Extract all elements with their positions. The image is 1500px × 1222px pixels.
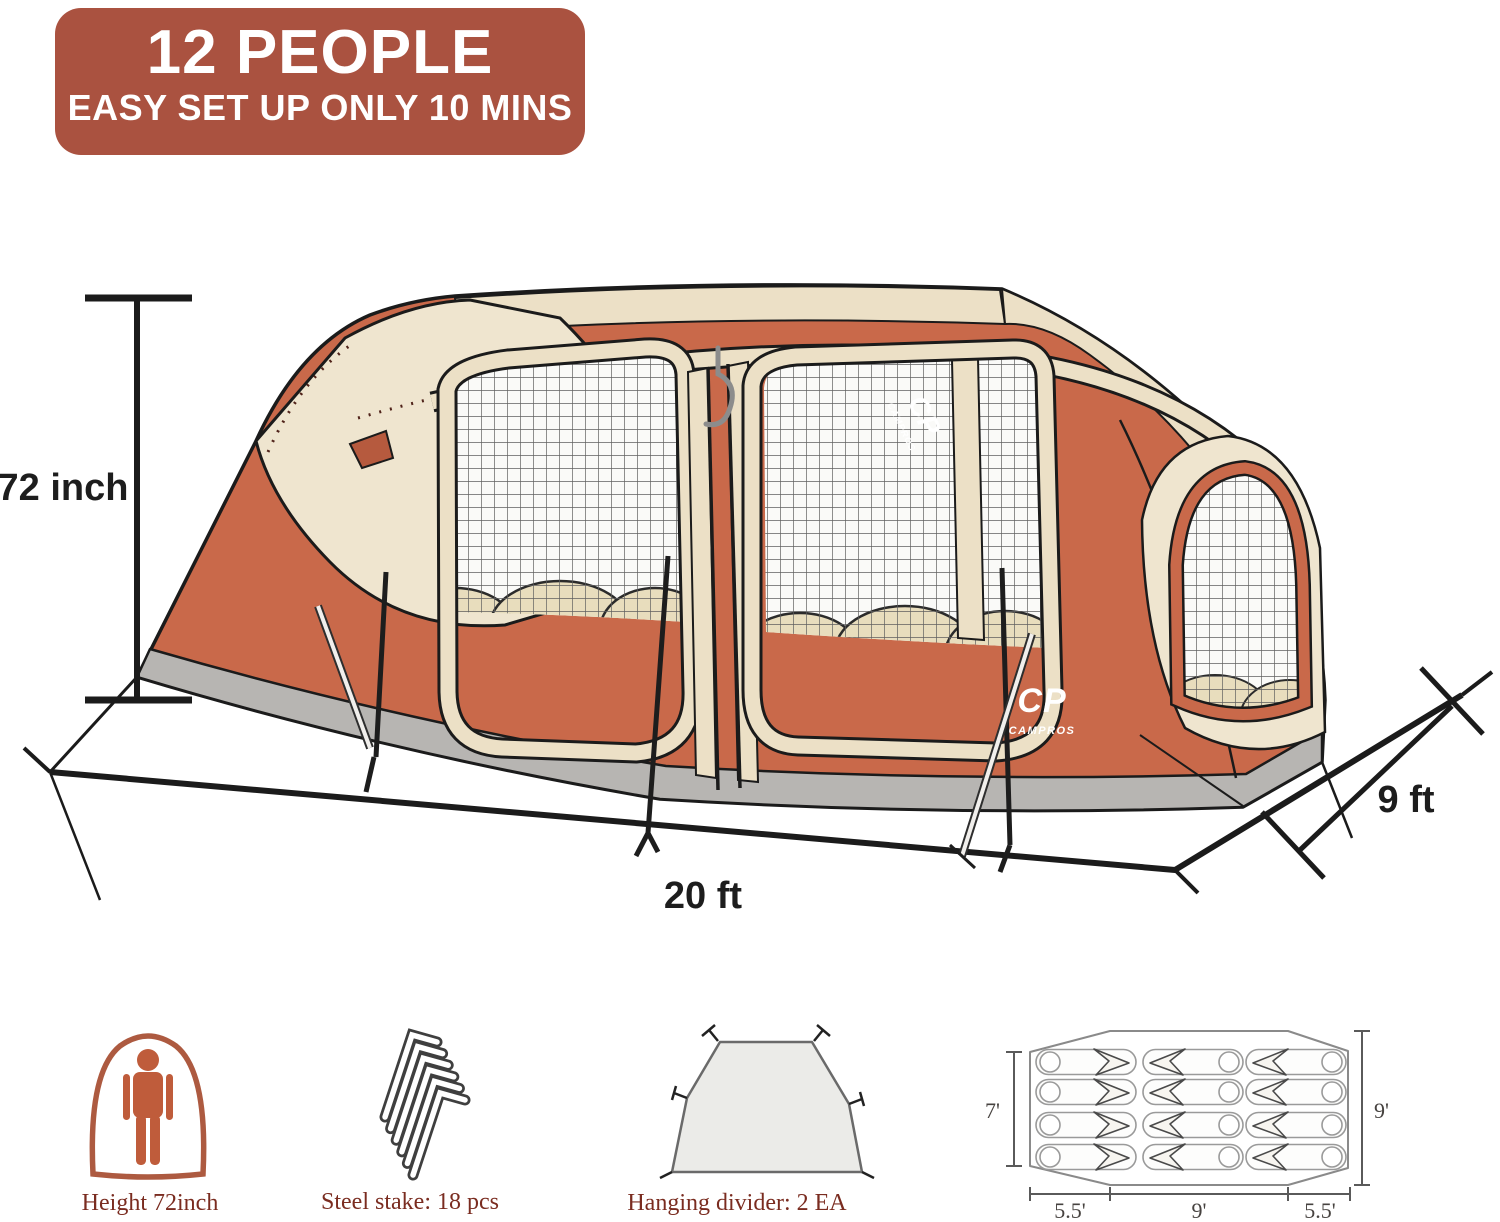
- floor-plan-icon: 7' 9' 5.5' 9' 5.5': [985, 1031, 1389, 1222]
- height-label: 72 inch: [0, 467, 128, 509]
- plan-width-left-label: 7': [985, 1098, 1000, 1123]
- hanging-divider-icon: Hanging divider: 2 EA: [627, 1025, 874, 1216]
- depth-label: 9 ft: [1378, 779, 1435, 821]
- divider-feature-caption: Hanging divider: 2 EA: [627, 1190, 847, 1216]
- brand-name: CAMPROS: [1009, 725, 1076, 737]
- capacity-badge: 12 PEOPLE EASY SET UP ONLY 10 MINS: [55, 8, 585, 155]
- plan-bottom-left-label: 5.5': [1054, 1198, 1086, 1222]
- plan-bottom-center-label: 9': [1192, 1198, 1207, 1222]
- badge-subtitle: EASY SET UP ONLY 10 MINS: [55, 86, 585, 130]
- steel-stakes-icon: Steel stake: 18 pcs: [321, 1035, 499, 1215]
- length-dimension: 20 ft: [664, 870, 1198, 917]
- brand-logo-front: CP CAMPROS: [1009, 682, 1076, 737]
- plan-bottom-right-label: 5.5': [1304, 1198, 1336, 1222]
- tent-illustration: CP CAMPROS CP CAMPROS: [137, 285, 1352, 872]
- plan-width-right-label: 9': [1374, 1098, 1389, 1123]
- badge-title: 12 PEOPLE: [55, 20, 585, 86]
- length-label: 20 ft: [664, 875, 742, 917]
- person-height-icon: Height 72inch: [82, 1036, 219, 1216]
- product-infographic: 12 PEOPLE EASY SET UP ONLY 10 MINS: [0, 0, 1500, 1222]
- stakes-feature-caption: Steel stake: 18 pcs: [321, 1189, 499, 1215]
- brand-initials: CP: [1017, 682, 1066, 720]
- height-feature-caption: Height 72inch: [82, 1190, 219, 1216]
- tent-diagram: CP CAMPROS CP CAMPROS 72 inch 20 ft 9 ft: [0, 0, 1500, 1222]
